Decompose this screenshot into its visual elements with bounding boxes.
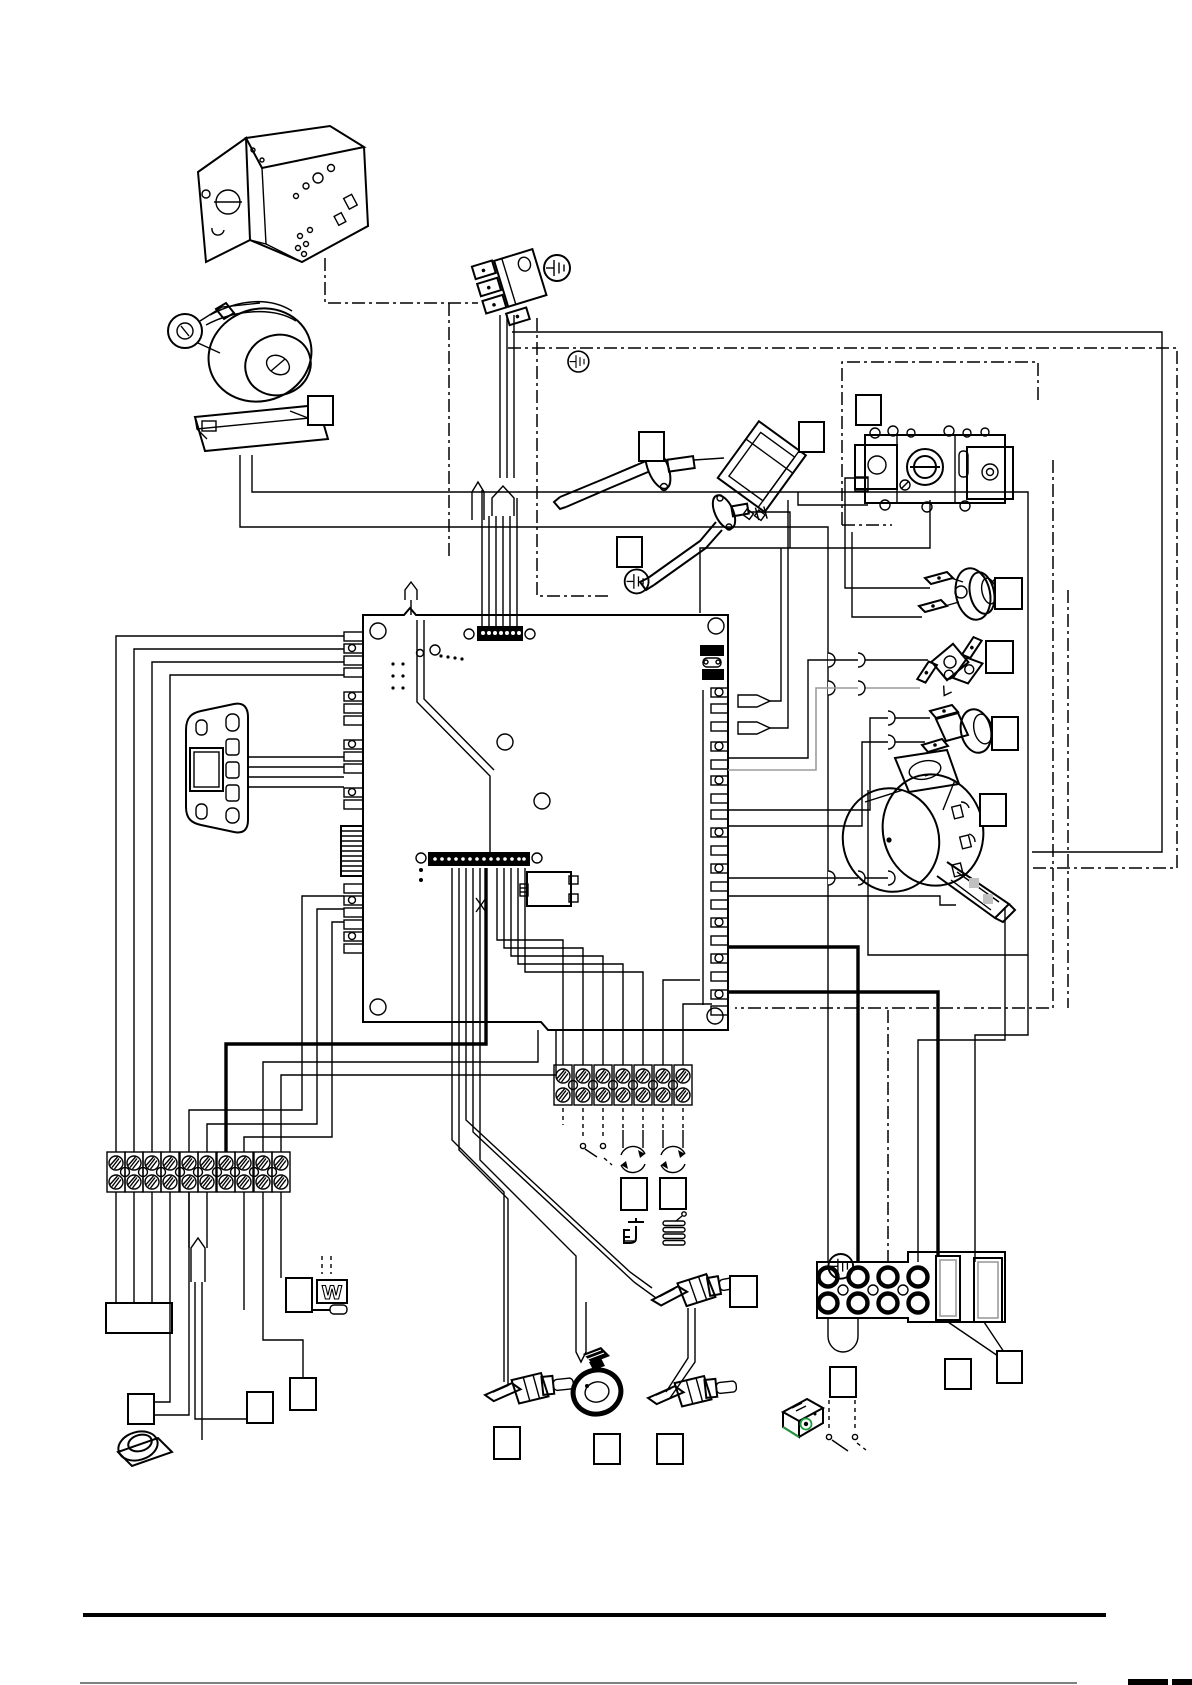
callout-link-modules bbox=[997, 1351, 1022, 1383]
callout-thermostat-3 bbox=[992, 717, 1018, 750]
callout-bottom-right-left bbox=[830, 1367, 856, 1397]
pcb-left-edge-connectors bbox=[341, 632, 363, 953]
callout-pressure-sensor bbox=[594, 1434, 620, 1464]
mains-input-connector bbox=[472, 248, 570, 478]
footer-edge-mark bbox=[1128, 1679, 1168, 1685]
pcb-solder-dots bbox=[391, 654, 463, 882]
callout-thermostat-2 bbox=[986, 641, 1013, 673]
callout-valve-2 bbox=[660, 1178, 686, 1209]
cable-loom-sleeves bbox=[405, 482, 517, 626]
footer-edge-mark bbox=[1172, 1679, 1192, 1685]
pcb-middle-connector bbox=[416, 852, 542, 866]
callout-gas-valve bbox=[856, 395, 881, 425]
bottom-right-externals bbox=[783, 1399, 866, 1451]
w-symbol-box: W bbox=[317, 1280, 347, 1304]
callout-boxes bbox=[128, 395, 1022, 1464]
circulation-pump bbox=[168, 295, 1028, 1262]
callout-bottom-left-3 bbox=[290, 1378, 316, 1410]
pcb-fuse bbox=[700, 645, 724, 680]
footer bbox=[80, 1613, 1192, 1685]
ntc-sensor-2 bbox=[483, 1370, 574, 1407]
callout-ntc-3 bbox=[657, 1434, 683, 1464]
callout-valve-1 bbox=[621, 1178, 647, 1210]
dash-dot-boundaries bbox=[325, 258, 1177, 1262]
pcb-relay bbox=[520, 872, 578, 906]
right-terminal-block bbox=[817, 1252, 1005, 1356]
thermostat-2 bbox=[913, 627, 997, 707]
earth-icon bbox=[568, 351, 589, 372]
main-pcb bbox=[341, 569, 728, 1030]
earth-icon bbox=[544, 255, 570, 281]
terminal-strip-7way bbox=[554, 1065, 692, 1105]
water-pressure-sensor bbox=[568, 1347, 625, 1419]
external-controls bbox=[563, 1108, 686, 1245]
callout-bottom-left-2 bbox=[247, 1392, 273, 1423]
ntc-sensor-3 bbox=[646, 1373, 737, 1410]
ntc-sensor-1 bbox=[649, 1269, 742, 1312]
thermostat-1 bbox=[919, 565, 1002, 623]
junction-box bbox=[106, 1303, 172, 1333]
wire-link-loop bbox=[828, 1318, 858, 1352]
wiring-diagram-page: W bbox=[0, 0, 1192, 1685]
display-panel bbox=[186, 704, 344, 833]
motorised-valve-symbol-1 bbox=[621, 1146, 645, 1172]
plug-icon bbox=[313, 1305, 347, 1314]
w-symbol: W bbox=[322, 1282, 343, 1304]
control-box-bracket bbox=[198, 126, 368, 262]
gas-valve bbox=[700, 426, 1013, 613]
earth-icon bbox=[625, 569, 649, 593]
callout-w-neighbour bbox=[286, 1278, 312, 1312]
strip-7way-feed-wires bbox=[497, 868, 712, 1065]
callout-fan bbox=[980, 794, 1006, 826]
footer-rule bbox=[83, 1613, 1106, 1617]
loom-sleeve bbox=[191, 1238, 205, 1282]
terminal-strip-10way bbox=[107, 1152, 290, 1192]
callout-spark-electrode bbox=[639, 432, 664, 461]
left-wiring-harness bbox=[116, 636, 556, 1152]
callout-pump bbox=[308, 396, 333, 425]
timer-module bbox=[783, 1399, 823, 1437]
pcb-top-connector bbox=[464, 626, 535, 641]
callout-thermostat-1 bbox=[995, 578, 1022, 609]
callout-ntc-2 bbox=[494, 1427, 520, 1459]
callout-bottom-right-mid bbox=[945, 1359, 971, 1389]
earth-icon bbox=[828, 1254, 853, 1279]
callout-bottom-left-1 bbox=[128, 1394, 154, 1424]
diagram-canvas: W bbox=[0, 0, 1192, 1685]
room-thermostat-switch bbox=[580, 1143, 612, 1165]
callout-flame-electrode bbox=[617, 537, 642, 567]
temperature-dial bbox=[115, 1427, 172, 1466]
callout-ignition-transformer bbox=[799, 422, 824, 452]
pcb-right-edge-connectors bbox=[711, 688, 728, 1015]
link-modules bbox=[936, 1256, 1002, 1322]
callout-ntc-1 bbox=[730, 1276, 757, 1307]
radiator-coil-icon bbox=[663, 1212, 686, 1245]
tap-icon bbox=[624, 1218, 644, 1243]
motorised-valve-symbol-2 bbox=[661, 1146, 685, 1172]
thermostat-3 bbox=[922, 705, 995, 756]
